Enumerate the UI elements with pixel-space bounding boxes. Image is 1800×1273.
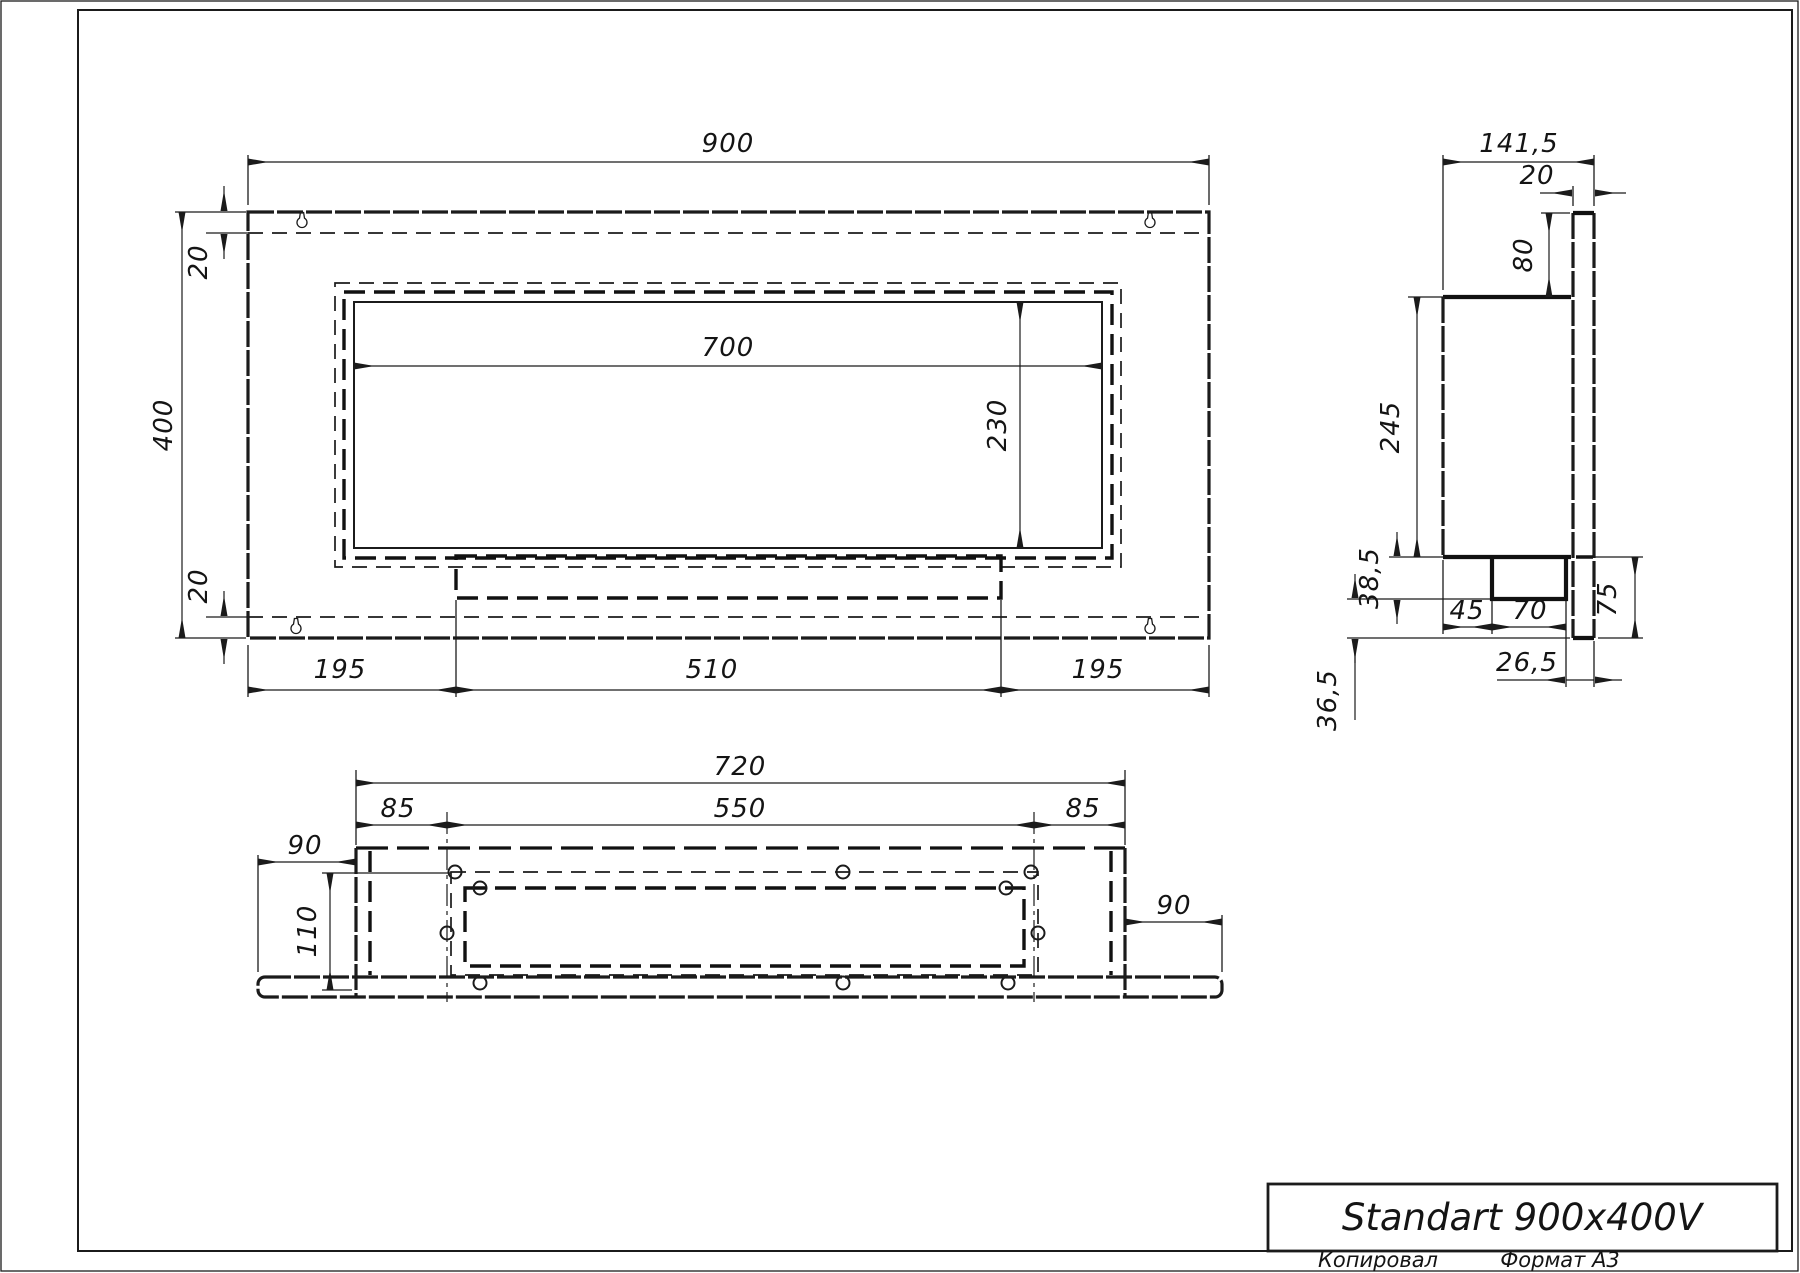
keyhole-icon	[297, 213, 307, 228]
dim-burner-front-offset: 45	[1449, 596, 1484, 626]
mount-plate	[1573, 213, 1594, 638]
dim-bottom-left: 195	[314, 655, 367, 685]
side-view: 141,5 20 80 245 38,5 36,5 45 70 26,5 75	[1313, 129, 1643, 731]
drawing-sheet: 900 400 20 20 700 230 195 510 195	[0, 0, 1800, 1273]
front-outer-outline	[248, 212, 1209, 638]
dim-bottom-right: 195	[1072, 655, 1125, 685]
dim-overall-width: 900	[702, 129, 755, 159]
dim-bottom-center: 510	[686, 655, 739, 685]
dim-burner-drop: 38,5	[1355, 547, 1385, 609]
bottom-view: 720 85 550 85 90 90 110	[258, 752, 1222, 1002]
dim-overall-depth: 141,5	[1479, 129, 1558, 159]
dim-opening-height: 230	[983, 399, 1013, 452]
dim-inner-depth: 110	[293, 905, 323, 958]
dim-burner-depth: 70	[1512, 596, 1547, 626]
keyhole-icon	[291, 619, 301, 634]
dim-left-overhang: 90	[287, 831, 322, 861]
dim-bottom-flange: 20	[184, 568, 214, 603]
keyhole-icon	[1145, 213, 1155, 228]
dim-lower-height: 75	[1593, 581, 1623, 616]
dim-top-flange: 20	[184, 244, 214, 279]
paper-edge	[1, 1, 1798, 1271]
dim-plate-top-offset: 80	[1509, 237, 1539, 272]
front-view: 900 400 20 20 700 230 195 510 195	[149, 129, 1209, 697]
burner-tray-hidden	[456, 556, 1001, 598]
dim-left-inset: 85	[380, 794, 415, 824]
front-witness-lines	[175, 155, 1209, 697]
dim-lower-gap: 36,5	[1313, 669, 1343, 731]
hole-icon	[837, 977, 850, 990]
dim-right-overhang: 90	[1156, 891, 1191, 921]
front-dimensions	[182, 162, 1209, 690]
dim-plate-thickness: 20	[1519, 161, 1554, 191]
dim-body-height: 245	[1376, 401, 1406, 454]
drawing-title: Standart 900x400V	[1342, 1196, 1705, 1239]
cutout-inner-hidden-frame	[465, 888, 1024, 966]
dim-box-width: 720	[714, 752, 767, 782]
dim-cutout-width: 550	[714, 794, 767, 824]
drawing-frame	[1, 1, 1798, 1271]
keyhole-icon	[1145, 619, 1155, 634]
dim-opening-width: 700	[702, 333, 755, 363]
frame-border	[78, 10, 1792, 1251]
dim-right-inset: 85	[1065, 794, 1100, 824]
footer-copied-label: Копировал	[1318, 1248, 1438, 1272]
side-body	[1443, 297, 1593, 557]
dim-overall-height: 400	[149, 399, 179, 452]
keyhole-slots	[291, 213, 1155, 634]
title-block: Standart 900x400V Копировал Формат A3	[1268, 1184, 1777, 1272]
dim-back-offset: 26,5	[1496, 648, 1558, 678]
mounting-holes	[441, 866, 1045, 990]
footer-format-label: Формат A3	[1500, 1248, 1620, 1272]
side-burner-channel	[1492, 557, 1566, 599]
back-strip-plate	[258, 977, 1222, 997]
bottom-box	[356, 848, 1125, 996]
